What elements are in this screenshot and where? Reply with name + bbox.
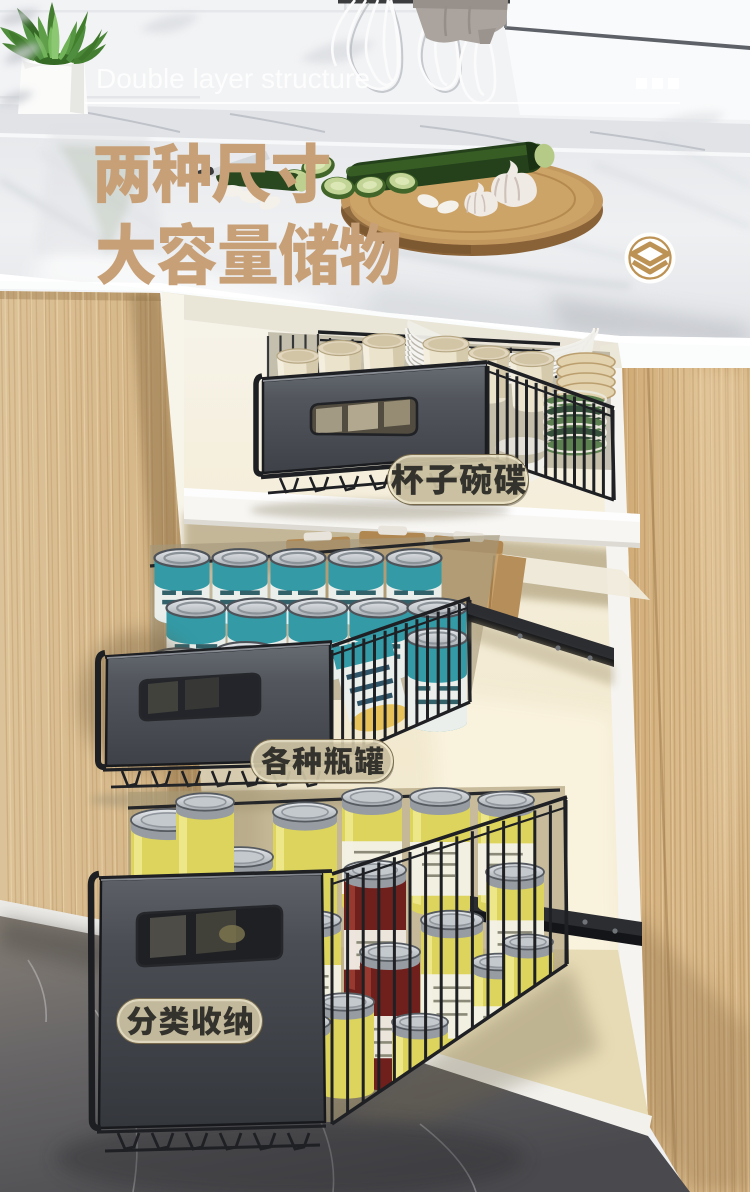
- svg-text:Double layer structure: Double layer structure: [96, 63, 370, 94]
